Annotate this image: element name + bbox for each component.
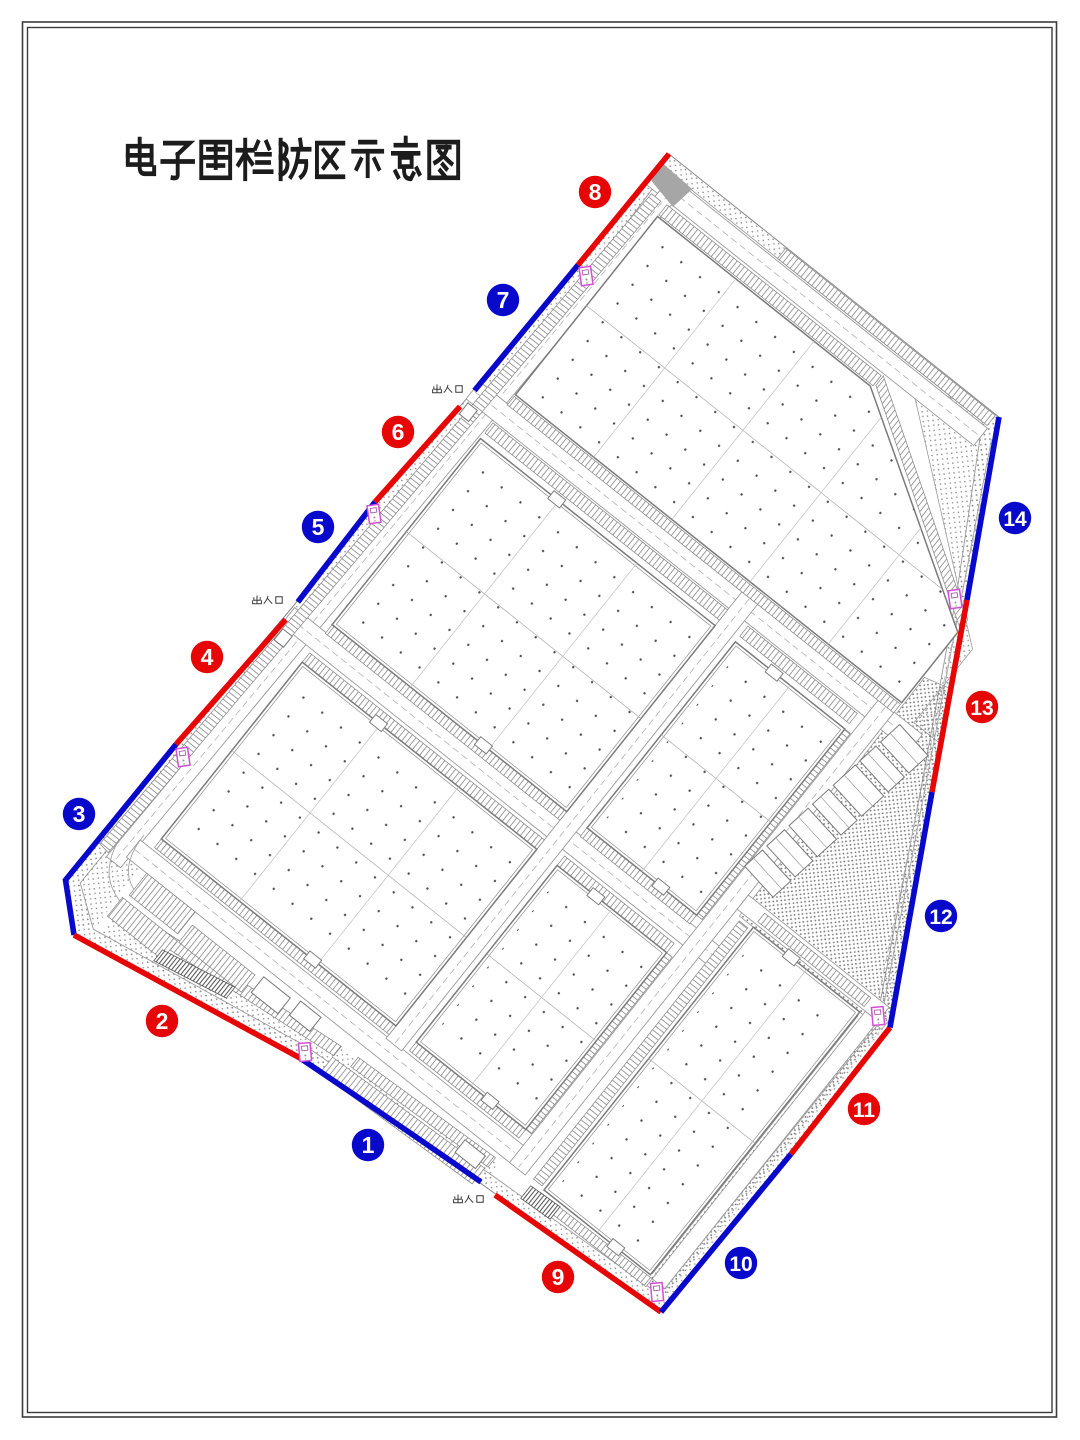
svg-text:5: 5 [312, 514, 325, 540]
svg-text:6: 6 [392, 419, 405, 445]
svg-text:4: 4 [201, 644, 214, 670]
svg-text:7: 7 [497, 287, 510, 313]
svg-text:14: 14 [1003, 508, 1027, 531]
svg-text:1: 1 [362, 1132, 375, 1158]
svg-text:10: 10 [729, 1253, 752, 1276]
svg-text:13: 13 [970, 697, 993, 720]
svg-text:8: 8 [589, 179, 602, 205]
svg-text:2: 2 [156, 1008, 169, 1034]
svg-text:12: 12 [929, 906, 952, 929]
svg-text:3: 3 [73, 801, 86, 827]
svg-text:9: 9 [552, 1264, 565, 1290]
svg-text:11: 11 [853, 1099, 876, 1122]
